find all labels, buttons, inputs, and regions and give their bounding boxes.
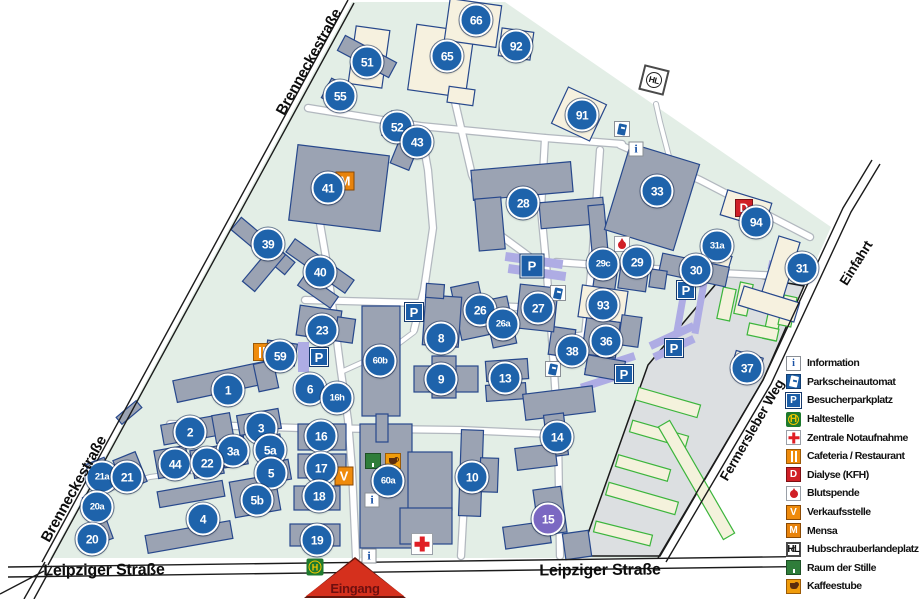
legend-label: Mensa (807, 525, 837, 537)
entrance-label: Eingang (304, 581, 406, 596)
building-badge-31: 31 (786, 252, 819, 285)
legend-label: Kaffeestube (807, 580, 862, 592)
building-badge-39: 39 (252, 228, 285, 261)
building-badge-59: 59 (264, 340, 297, 373)
building-badge-2: 2 (174, 416, 207, 449)
building-badges-layer: 66926551555243914128339431a31302929c9336… (0, 0, 920, 599)
building-badge-55: 55 (324, 80, 357, 113)
building-badge-40: 40 (304, 256, 337, 289)
building-badge-27: 27 (522, 292, 555, 325)
notaufnahme-icon (786, 430, 801, 445)
building-badge-19: 19 (301, 524, 334, 557)
stille-icon (786, 560, 801, 575)
building-badge-9: 9 (425, 363, 458, 396)
building-badge-8: 8 (425, 322, 458, 355)
building-badge-18: 18 (303, 480, 336, 513)
legend-item-parkautomat: Parkscheinautomat (786, 373, 920, 392)
building-badge-22: 22 (191, 447, 224, 480)
building-badge-1: 1 (212, 374, 245, 407)
cafeteria-icon (786, 449, 801, 464)
building-badge-41: 41 (312, 172, 345, 205)
building-badge-15: 15 (532, 503, 565, 536)
kaffee-icon (786, 579, 801, 594)
building-badge-20: 20 (76, 523, 109, 556)
legend-label: Haltestelle (807, 413, 854, 425)
building-badge-65: 65 (431, 40, 464, 73)
street-label-leipziger-east: Leipziger Straße (539, 561, 660, 580)
building-badge-43: 43 (401, 126, 434, 159)
legend-item-mensa: MMensa (786, 521, 920, 540)
legend-label: Hubschrauberlandeplatz (807, 543, 919, 555)
building-badge-20a: 20a (81, 491, 114, 524)
building-badge-60a: 60a (372, 465, 405, 498)
legend-item-cafeteria: Cafeteria / Restaurant (786, 447, 920, 466)
building-badge-14: 14 (541, 421, 574, 454)
building-badge-94: 94 (740, 206, 773, 239)
building-badge-13: 13 (489, 362, 522, 395)
building-badge-26a: 26a (487, 308, 520, 341)
legend-item-parkplatz: PBesucherparkplatz (786, 391, 920, 410)
legend-item-information: iInformation (786, 354, 920, 373)
verkauf-icon: V (786, 505, 801, 520)
building-badge-51: 51 (351, 46, 384, 79)
legend-label: Raum der Stille (807, 562, 876, 574)
mensa-icon: M (786, 523, 801, 538)
building-badge-29c: 29c (587, 248, 620, 281)
legend-label: Dialyse (KFH) (807, 469, 869, 481)
legend-label: Zentrale Notaufnahme (807, 432, 908, 444)
building-badge-21: 21 (111, 461, 144, 494)
building-badge-92: 92 (500, 30, 533, 63)
building-badge-33: 33 (641, 175, 674, 208)
parkplatz-icon: P (786, 393, 801, 408)
legend-label: Information (807, 357, 859, 369)
building-badge-60b: 60b (364, 345, 397, 378)
building-badge-36: 36 (590, 325, 623, 358)
legend-item-dialyse: DDialyse (KFH) (786, 466, 920, 485)
building-badge-23: 23 (306, 314, 339, 347)
building-badge-44: 44 (159, 448, 192, 481)
haltestelle-icon: H (786, 412, 801, 427)
legend-label: Besucherparkplatz (807, 394, 892, 406)
legend-item-blutspende: Blutspende (786, 484, 920, 503)
building-badge-93: 93 (587, 289, 620, 322)
building-badge-5b: 5b (241, 484, 274, 517)
building-badge-66: 66 (460, 4, 493, 37)
building-badge-29: 29 (621, 246, 654, 279)
legend-label: Cafeteria / Restaurant (807, 450, 905, 462)
legend-item-stille: Raum der Stille (786, 559, 920, 578)
building-badge-4: 4 (187, 503, 220, 536)
street-label-leipziger-west: Leipziger Straße (43, 561, 164, 580)
dialyse-icon: D (786, 467, 801, 482)
building-badge-16h: 16h (321, 382, 354, 415)
information-icon: i (786, 356, 801, 371)
legend-item-kaffee: Kaffeestube (786, 577, 920, 596)
building-badge-28: 28 (507, 187, 540, 220)
campus-map: MVDiiiPPPPPPHHL 669265515552439141283394… (0, 0, 920, 599)
legend-label: Blutspende (807, 487, 859, 499)
legend-label: Verkaufsstelle (807, 506, 871, 518)
building-badge-91: 91 (566, 99, 599, 132)
building-badge-10: 10 (456, 461, 489, 494)
legend: iInformationParkscheinautomatPBesucherpa… (786, 354, 920, 596)
building-badge-16: 16 (305, 420, 338, 453)
legend-item-hubschrauber: HLHubschrauberlandeplatz (786, 540, 920, 559)
legend-item-haltestelle: HHaltestelle (786, 410, 920, 429)
legend-label: Parkscheinautomat (807, 376, 895, 388)
hubschrauber-icon: HL (786, 542, 801, 557)
legend-item-notaufnahme: Zentrale Notaufnahme (786, 428, 920, 447)
blutspende-icon (786, 486, 801, 501)
building-badge-38: 38 (556, 335, 589, 368)
parkautomat-icon (786, 374, 801, 389)
building-badge-37: 37 (731, 352, 764, 385)
building-badge-30: 30 (680, 254, 713, 287)
legend-item-verkauf: VVerkaufsstelle (786, 503, 920, 522)
entrance-marker: Eingang (304, 557, 406, 598)
